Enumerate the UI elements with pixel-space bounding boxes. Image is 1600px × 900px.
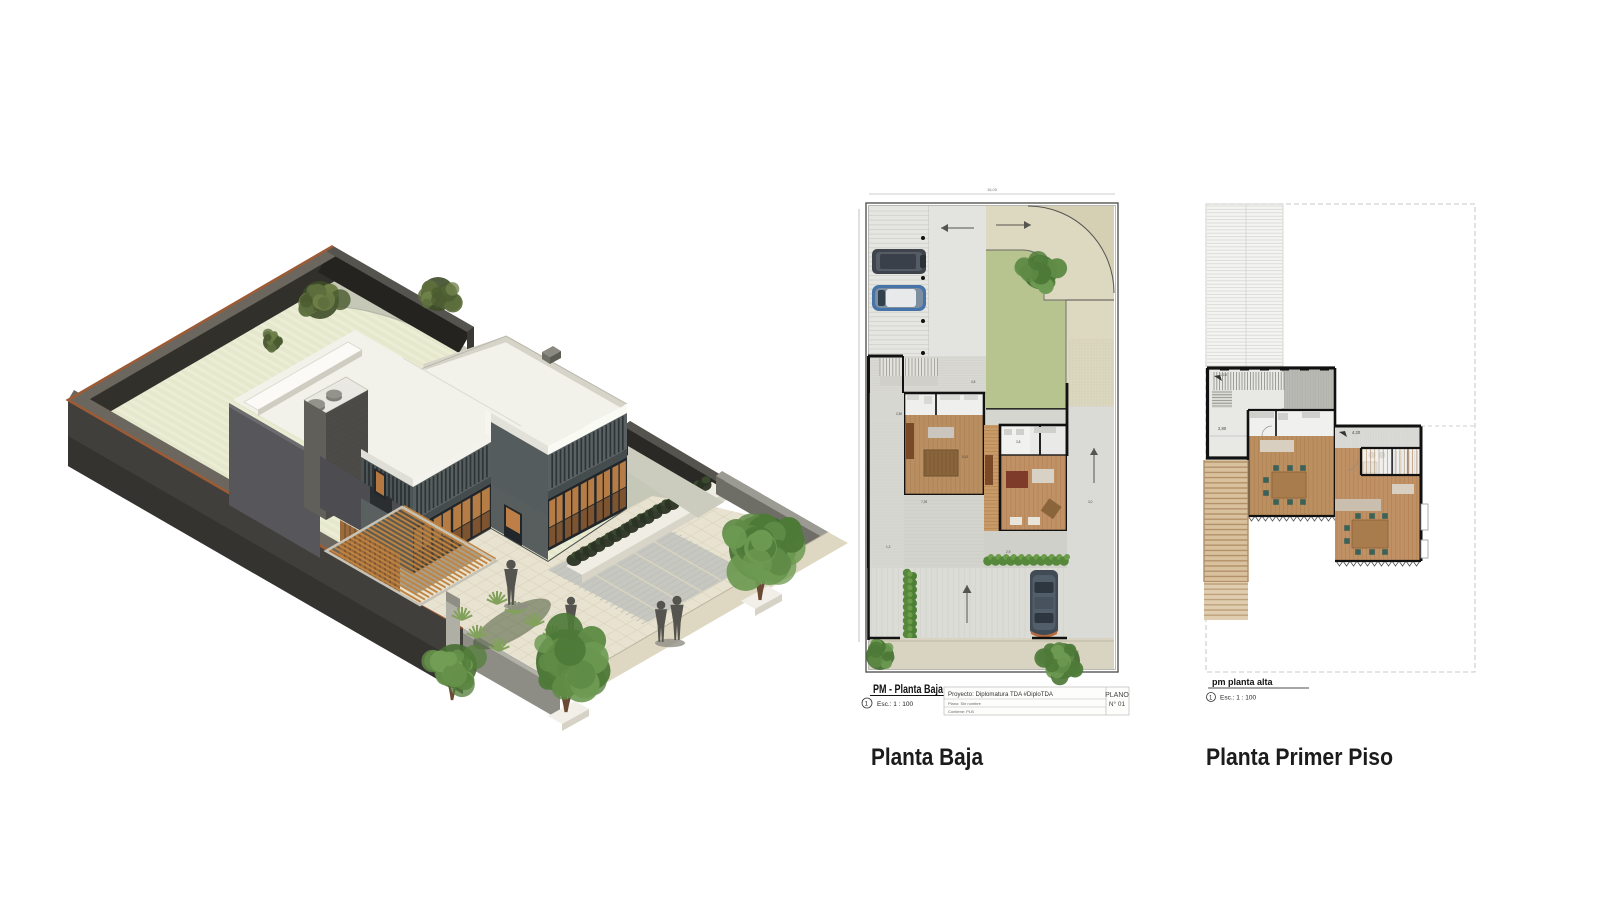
svg-text:2,50: 2,50 (896, 412, 902, 416)
svg-text:N° 01: N° 01 (1109, 700, 1126, 708)
svg-text:2,80: 2,80 (1218, 426, 1227, 431)
svg-text:pm planta alta: pm planta alta (1212, 677, 1274, 687)
svg-text:Planta Primer Piso: Planta Primer Piso (1206, 744, 1393, 771)
svg-text:Plano: Sin nombre: Plano: Sin nombre (948, 701, 982, 706)
svg-text:4,5: 4,5 (971, 380, 976, 384)
svg-text:7,25: 7,25 (921, 500, 927, 504)
svg-text:Esc.: 1 : 100: Esc.: 1 : 100 (877, 701, 914, 708)
svg-text:4,20: 4,20 (1352, 430, 1361, 435)
svg-text:1,18: 1,18 (1220, 373, 1227, 377)
svg-text:PM - Planta Baja: PM - Planta Baja (873, 682, 943, 696)
svg-text:PLANO: PLANO (1105, 692, 1129, 699)
svg-text:1,2: 1,2 (886, 545, 891, 549)
svg-text:Planta Baja: Planta Baja (871, 744, 984, 771)
svg-text:Esc.: 1 : 100: Esc.: 1 : 100 (1220, 695, 1257, 702)
svg-text:3,8: 3,8 (1016, 440, 1021, 444)
svg-text:1: 1 (865, 701, 869, 708)
svg-text:5,10: 5,10 (962, 455, 968, 459)
svg-text:2,9: 2,9 (1006, 550, 1011, 554)
svg-text:16,00: 16,00 (987, 187, 998, 192)
svg-text:Contiene: PLB: Contiene: PLB (948, 709, 974, 714)
svg-text:3,0: 3,0 (1088, 500, 1093, 504)
svg-text:Proyecto: Diplomatura TDA #Di: Proyecto: Diplomatura TDA #DiploTDA (948, 691, 1054, 698)
